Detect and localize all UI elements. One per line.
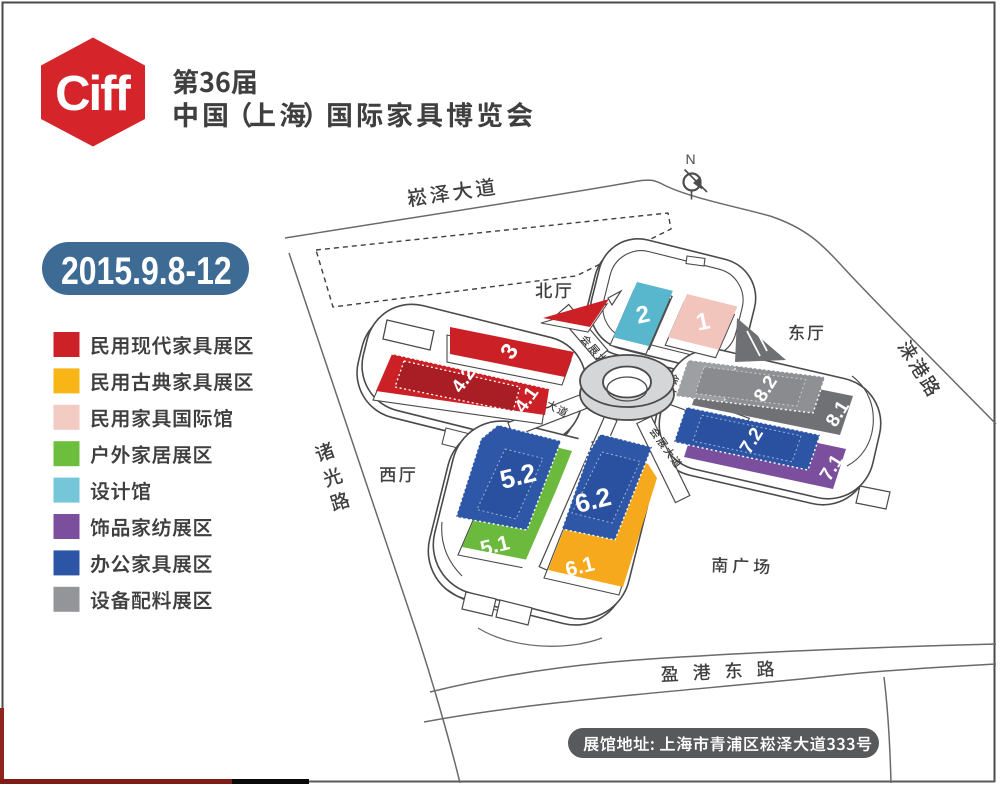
svg-text:2015.9.8-12: 2015.9.8-12	[61, 249, 232, 293]
svg-text:N: N	[685, 151, 695, 167]
svg-text:Ciff: Ciff	[55, 67, 131, 121]
